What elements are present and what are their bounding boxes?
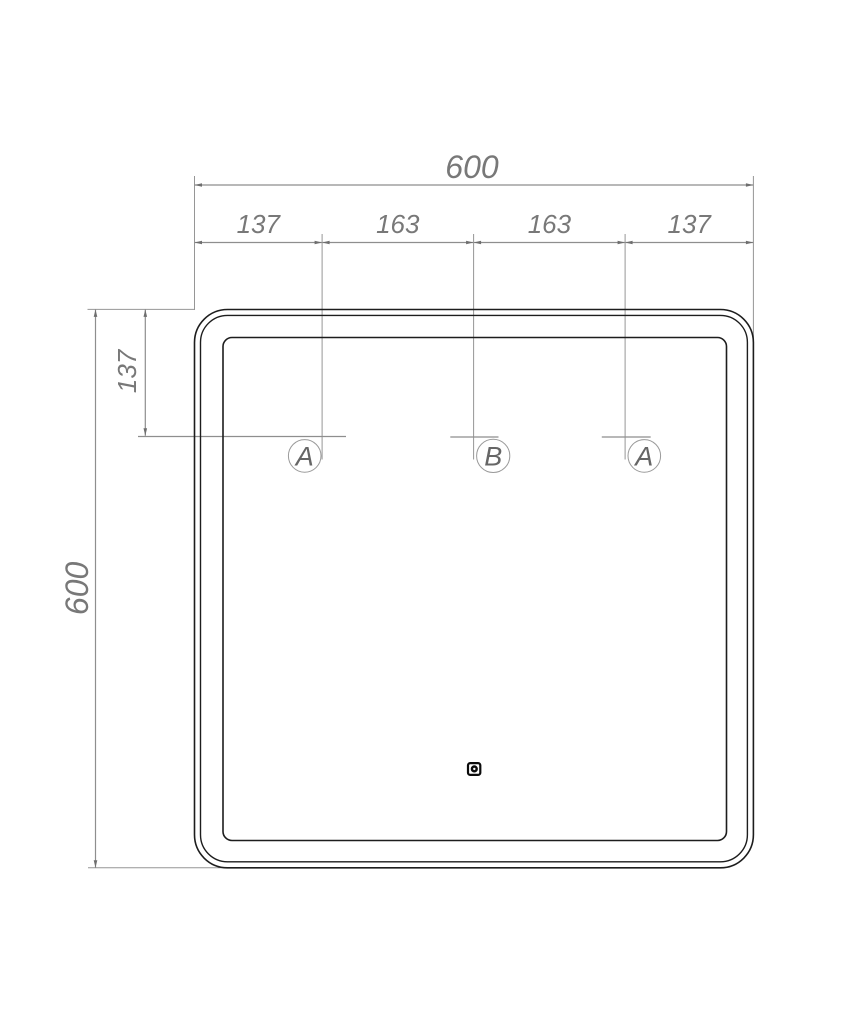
svg-text:137: 137 [112, 348, 142, 393]
svg-text:A: A [633, 441, 653, 471]
svg-text:600: 600 [59, 562, 95, 616]
svg-text:163: 163 [376, 209, 420, 239]
svg-text:B: B [484, 441, 502, 471]
svg-text:137: 137 [668, 209, 713, 239]
svg-text:137: 137 [237, 209, 282, 239]
svg-text:163: 163 [528, 209, 572, 239]
svg-text:600: 600 [445, 149, 499, 185]
svg-text:A: A [294, 441, 314, 471]
